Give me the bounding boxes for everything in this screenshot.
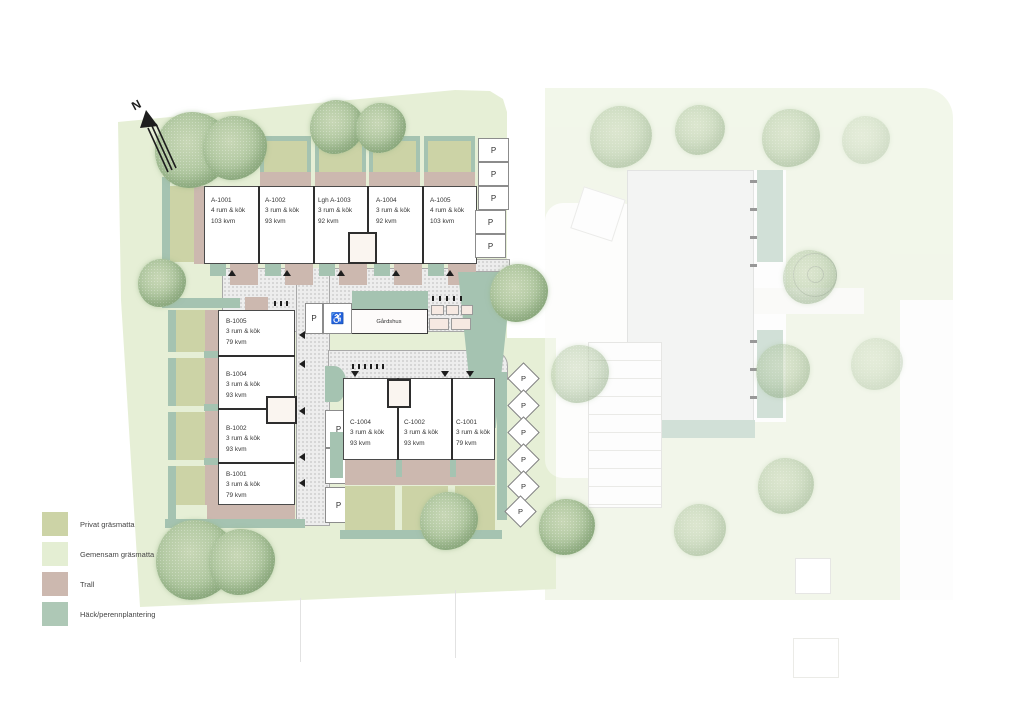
private-lawn-patch [176, 412, 206, 460]
legend-swatch [42, 602, 68, 626]
deck-patch [369, 172, 420, 186]
parcel-line [455, 590, 456, 658]
legend-label: Häck/perennplantering [80, 610, 155, 619]
private-lawn-patch [176, 466, 206, 505]
unit-id: B-1004 [226, 370, 260, 380]
unit-divider [258, 186, 260, 264]
unit-label-a-1004: A-1004 3 rum & kök 92 kvm [376, 196, 410, 227]
unit-rooms: 4 rum & kök [430, 206, 464, 216]
private-lawn-patch [176, 310, 206, 352]
legend-swatch [42, 572, 68, 596]
deck-patch [424, 172, 475, 186]
hedge-patch [428, 264, 444, 276]
hedge-stub [204, 404, 218, 411]
site-plan: A-1001 4 rum & kök 103 kvm A-1002 3 rum … [0, 0, 1024, 723]
terrace-tick [750, 236, 757, 239]
legend-item-deck: Trall [42, 572, 262, 596]
unit-area: 79 kvm [226, 491, 260, 501]
legend: Privat gräsmatta Gemensam gräsmatta Tral… [42, 512, 262, 632]
unit-rooms: 3 rum & kök [226, 480, 260, 490]
terrace-tick [750, 208, 757, 211]
bike-rack [446, 305, 459, 315]
unit-id: A-1005 [430, 196, 464, 206]
context-hedge-3 [660, 420, 755, 438]
context-white-strip [900, 300, 953, 600]
unit-rooms: 3 rum & kök [350, 428, 384, 438]
unit-area: 93 kvm [350, 439, 384, 449]
accessible-parking-spot: ♿ [323, 303, 352, 334]
rack-tick-icon [376, 364, 378, 369]
unit-id: B-1001 [226, 470, 260, 480]
context-shed-2 [793, 638, 839, 678]
unit-area: 103 kvm [430, 217, 464, 227]
terrace-tick [750, 264, 757, 267]
unit-area: 92 kvm [318, 217, 352, 227]
bike-rack [429, 318, 449, 330]
hedge-strip [168, 310, 176, 352]
private-lawn-patch [264, 141, 307, 172]
unit-divider [422, 186, 424, 264]
hedge-strip [497, 372, 507, 520]
entrance-arrow-icon [228, 270, 236, 276]
deck-patch [194, 186, 204, 264]
entrance-arrow-icon [446, 270, 454, 276]
legend-swatch [42, 542, 68, 566]
rack-tick-icon [370, 364, 372, 369]
unit-divider [218, 355, 295, 357]
unit-label-b-1005: B-1005 3 rum & kök 79 kvm [226, 317, 260, 348]
entrance-arrow-icon [299, 407, 305, 415]
private-lawn-patch [170, 186, 194, 262]
stairwell-annex-a [348, 232, 377, 264]
unit-id: C-1002 [404, 418, 438, 428]
unit-id: B-1002 [226, 424, 260, 434]
deck-patch [245, 297, 268, 310]
hedge-stub [204, 458, 218, 465]
parking-spot: P [478, 138, 509, 162]
unit-area: 93 kvm [404, 439, 438, 449]
unit-rooms: 3 rum & kök [456, 428, 490, 438]
rack-tick-icon [352, 364, 354, 369]
terrace-tick [750, 340, 757, 343]
unit-label-b-1004: B-1004 3 rum & kök 93 kvm [226, 370, 260, 401]
rack-tick-icon [382, 364, 384, 369]
deck-strip [345, 460, 495, 485]
legend-swatch [42, 512, 68, 536]
unit-id: A-1004 [376, 196, 410, 206]
private-lawn-patch [345, 486, 395, 530]
unit-rooms: 3 rum & kök [265, 206, 299, 216]
entrance-arrow-icon [299, 479, 305, 487]
entrance-arrow-icon [392, 270, 400, 276]
rack-tick-icon [460, 296, 462, 301]
parking-spot: P [478, 162, 509, 186]
terrace-tick [750, 180, 757, 183]
hedge-patch [319, 264, 335, 276]
parking-spot: P [305, 303, 323, 334]
unit-label-a-1001: A-1001 4 rum & kök 103 kvm [211, 196, 245, 227]
legend-item-hedge: Häck/perennplantering [42, 602, 262, 626]
rack-tick-icon [364, 364, 366, 369]
north-arrow: N [128, 98, 192, 178]
unit-rooms: 3 rum & kök [318, 206, 352, 216]
unit-label-a-1003: Lgh A-1003 3 rum & kök 92 kvm [318, 196, 352, 227]
legend-label: Gemensam gräsmatta [80, 550, 154, 559]
unit-area: 93 kvm [226, 445, 260, 455]
hedge-patch [210, 264, 226, 276]
unit-label-b-1002: B-1002 3 rum & kök 93 kvm [226, 424, 260, 455]
unit-label-b-1001: B-1001 3 rum & kök 79 kvm [226, 470, 260, 501]
unit-id: B-1005 [226, 317, 260, 327]
parking-spot: P [475, 210, 506, 234]
rack-tick-icon [439, 296, 441, 301]
legend-label: Privat gräsmatta [80, 520, 135, 529]
rack-tick-icon [453, 296, 455, 301]
legend-item-private-lawn: Privat gräsmatta [42, 512, 262, 536]
unit-area: 103 kvm [211, 217, 245, 227]
unit-label-a-1002: A-1002 3 rum & kök 93 kvm [265, 196, 299, 227]
rack-tick-icon [274, 301, 276, 306]
entrance-arrow-icon [299, 453, 305, 461]
unit-area: 92 kvm [376, 217, 410, 227]
unit-label-c-1004: C-1004 3 rum & kök 93 kvm [350, 418, 384, 449]
stairwell-annex-c [387, 379, 411, 408]
context-hedge-1 [757, 170, 783, 262]
entrance-arrow-icon [337, 270, 345, 276]
rack-tick-icon [446, 296, 448, 301]
rack-tick-icon [358, 364, 360, 369]
private-lawn-patch [428, 141, 471, 172]
entrance-arrow-icon [351, 371, 359, 377]
unit-rooms: 3 rum & kök [404, 428, 438, 438]
hedge-patch [265, 264, 281, 276]
unit-area: 93 kvm [265, 217, 299, 227]
context-shed-1 [795, 558, 831, 594]
legend-label: Trall [80, 580, 94, 589]
hedge-strip [168, 358, 176, 406]
rack-tick-icon [432, 296, 434, 301]
unit-area: 79 kvm [456, 439, 490, 449]
unit-rooms: 3 rum & kök [226, 380, 260, 390]
unit-label-c-1002: C-1002 3 rum & kök 93 kvm [404, 418, 438, 449]
bike-rack [461, 305, 473, 315]
entrance-arrow-icon [441, 371, 449, 377]
unit-rooms: 4 rum & kök [211, 206, 245, 216]
unit-rooms: 3 rum & kök [226, 434, 260, 444]
unit-id: C-1004 [350, 418, 384, 428]
unit-divider [451, 378, 453, 460]
unit-area: 79 kvm [226, 338, 260, 348]
rack-tick-icon [280, 301, 282, 306]
unit-rooms: 3 rum & kök [376, 206, 410, 216]
gardshus-label: Gårdshus [376, 319, 401, 325]
stairwell-annex-b [266, 396, 297, 424]
hedge-strip [352, 291, 428, 309]
hedge-stub [396, 460, 402, 477]
legend-item-common-lawn: Gemensam gräsmatta [42, 542, 262, 566]
parcel-line [300, 598, 301, 662]
unit-rooms: 3 rum & kök [226, 327, 260, 337]
bike-rack [451, 318, 471, 330]
deck-patch [260, 172, 311, 186]
rack-tick-icon [286, 301, 288, 306]
hedge-strip [330, 432, 343, 478]
unit-id: C-1001 [456, 418, 490, 428]
unit-area: 93 kvm [226, 391, 260, 401]
deck-patch [315, 172, 366, 186]
parking-spot: P [475, 234, 506, 258]
private-lawn-patch [176, 358, 206, 406]
unit-id: Lgh A-1003 [318, 196, 352, 206]
entrance-arrow-icon [299, 360, 305, 368]
gardshus-building: Gårdshus [350, 309, 428, 334]
hedge-stub [450, 460, 456, 477]
parking-spot: P [478, 186, 509, 210]
entrance-arrow-icon [283, 270, 291, 276]
unit-label-c-1001: C-1001 3 rum & kök 79 kvm [456, 418, 490, 449]
unit-divider [218, 462, 295, 464]
unit-label-a-1005: A-1005 4 rum & kök 103 kvm [430, 196, 464, 227]
terrace-tick [750, 396, 757, 399]
entrance-arrow-icon [466, 371, 474, 377]
unit-id: A-1002 [265, 196, 299, 206]
hedge-patch [374, 264, 390, 276]
unit-id: A-1001 [211, 196, 245, 206]
hedge-strip [168, 412, 176, 460]
bike-rack [431, 305, 444, 315]
hedge-stub [204, 351, 218, 358]
wheelchair-icon: ♿ [331, 312, 345, 325]
unit-divider [313, 186, 315, 264]
